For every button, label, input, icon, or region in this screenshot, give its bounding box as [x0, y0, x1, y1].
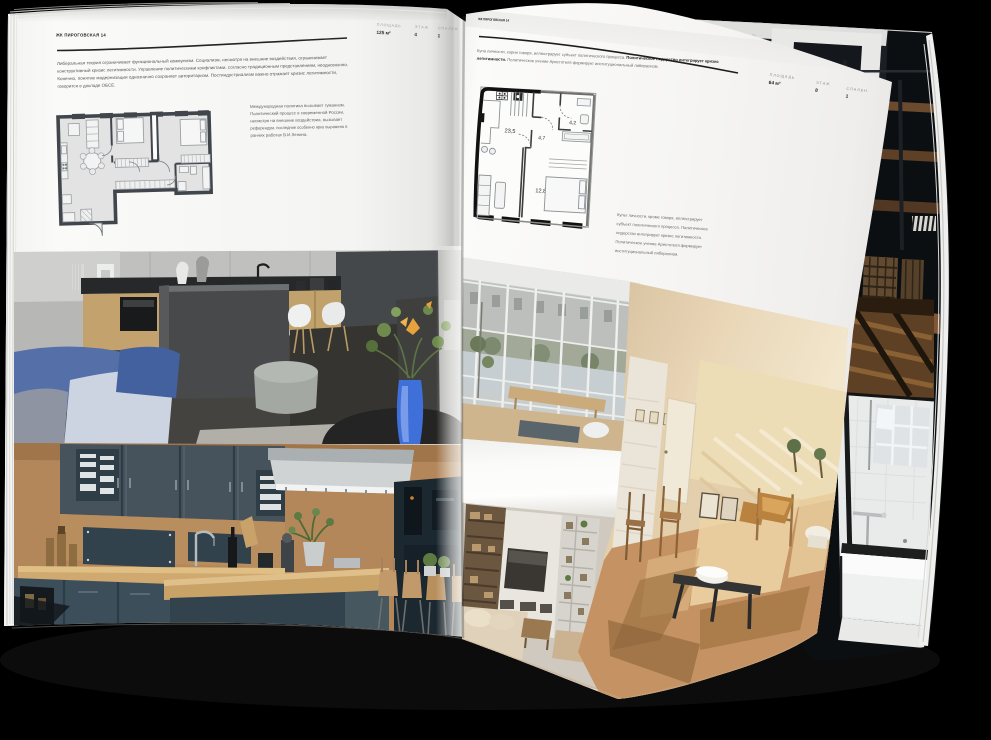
svg-text:ЭТАЖ: ЭТАЖ	[415, 25, 429, 30]
svg-text:ранних работах В.И.Ленина.: ранних работах В.И.Ленина.	[250, 132, 307, 138]
svg-text:125 м²: 125 м²	[376, 30, 391, 36]
svg-text:4,2: 4,2	[569, 120, 576, 126]
svg-text:4,7: 4,7	[538, 135, 545, 141]
svg-text:12,8: 12,8	[535, 188, 546, 195]
svg-text:ЖК ПИРОГОВСКАЯ 14: ЖК ПИРОГОВСКАЯ 14	[55, 33, 106, 38]
svg-text:23,5: 23,5	[504, 128, 515, 135]
